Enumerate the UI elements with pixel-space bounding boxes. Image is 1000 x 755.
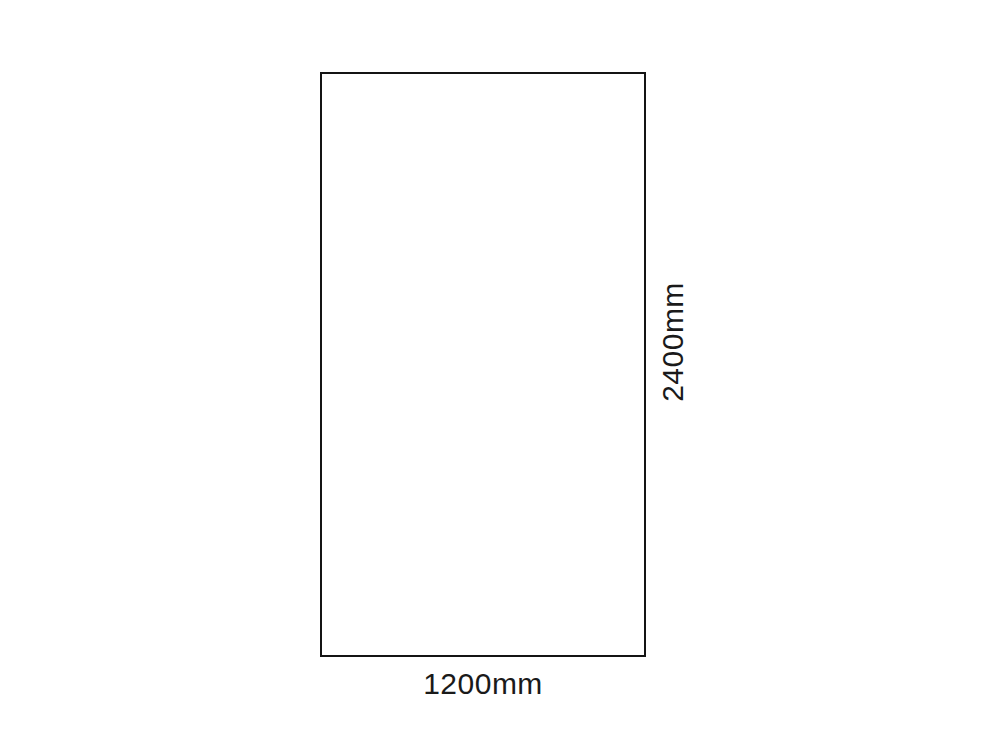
panel-rectangle: [320, 72, 646, 657]
width-dimension-label: 1200mm: [320, 666, 646, 702]
diagram-canvas: 1200mm 2400mm: [0, 0, 1000, 755]
height-dimension-label: 2400mm: [658, 262, 688, 422]
